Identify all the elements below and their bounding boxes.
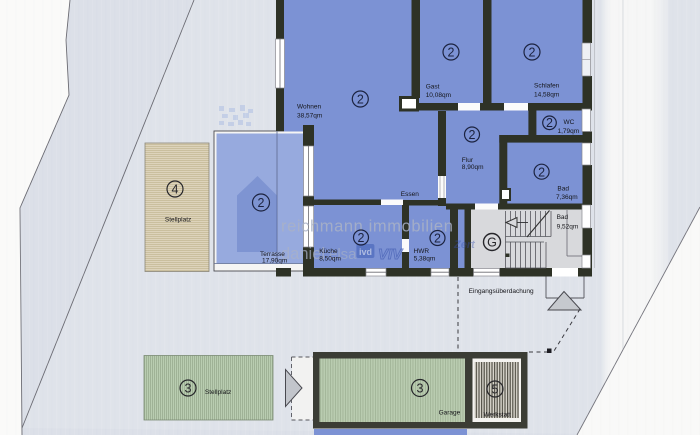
svg-text:Werkstatt: Werkstatt	[484, 412, 512, 419]
svg-text:G: G	[487, 236, 497, 250]
svg-text:38,57qm: 38,57qm	[297, 112, 322, 119]
svg-text:Bad: Bad	[557, 214, 569, 221]
svg-text:2: 2	[357, 93, 364, 107]
svg-text:HWR: HWR	[414, 248, 430, 255]
svg-text:2: 2	[358, 231, 365, 245]
svg-text:8,90qm: 8,90qm	[462, 164, 484, 171]
svg-text:9,52qm: 9,52qm	[557, 224, 579, 231]
svg-text:Gast: Gast	[426, 83, 440, 90]
svg-text:8,50qm: 8,50qm	[319, 256, 341, 263]
svg-text:VIV: VIV	[378, 246, 404, 263]
svg-text:Flur: Flur	[462, 157, 474, 164]
svg-text:Bad: Bad	[557, 186, 569, 193]
svg-text:Schlafen: Schlafen	[534, 83, 560, 90]
svg-text:4: 4	[172, 183, 179, 197]
svg-text:10,08qm: 10,08qm	[426, 92, 451, 99]
svg-text:ivd: ivd	[359, 247, 372, 257]
svg-text:2: 2	[434, 232, 441, 246]
svg-text:5,38qm: 5,38qm	[414, 256, 436, 263]
svg-text:Zert: Zert	[453, 239, 476, 251]
svg-text:17,90qm: 17,90qm	[262, 258, 287, 265]
svg-text:2: 2	[529, 46, 536, 60]
svg-text:Wohnen: Wohnen	[297, 104, 321, 111]
svg-text:2: 2	[448, 46, 455, 60]
svg-text:Stellplatz: Stellplatz	[205, 389, 231, 396]
svg-text:2: 2	[258, 196, 265, 210]
svg-text:5: 5	[492, 383, 499, 397]
svg-text:Küche: Küche	[319, 248, 338, 255]
svg-text:3: 3	[185, 382, 192, 396]
svg-text:Essen: Essen	[401, 191, 419, 198]
svg-text:2: 2	[546, 116, 553, 130]
svg-text:Stellplatz: Stellplatz	[165, 217, 191, 224]
svg-text:Eingangsüberdachung: Eingangsüberdachung	[469, 288, 534, 295]
svg-text:Garage: Garage	[439, 410, 461, 417]
svg-text:2: 2	[469, 128, 476, 142]
svg-text:7,36qm: 7,36qm	[556, 194, 578, 201]
svg-text:2: 2	[538, 165, 545, 179]
svg-text:1,79qm: 1,79qm	[558, 128, 580, 135]
svg-text:WC: WC	[564, 119, 575, 126]
svg-text:3: 3	[417, 382, 424, 396]
svg-text:14,58qm: 14,58qm	[534, 91, 559, 98]
